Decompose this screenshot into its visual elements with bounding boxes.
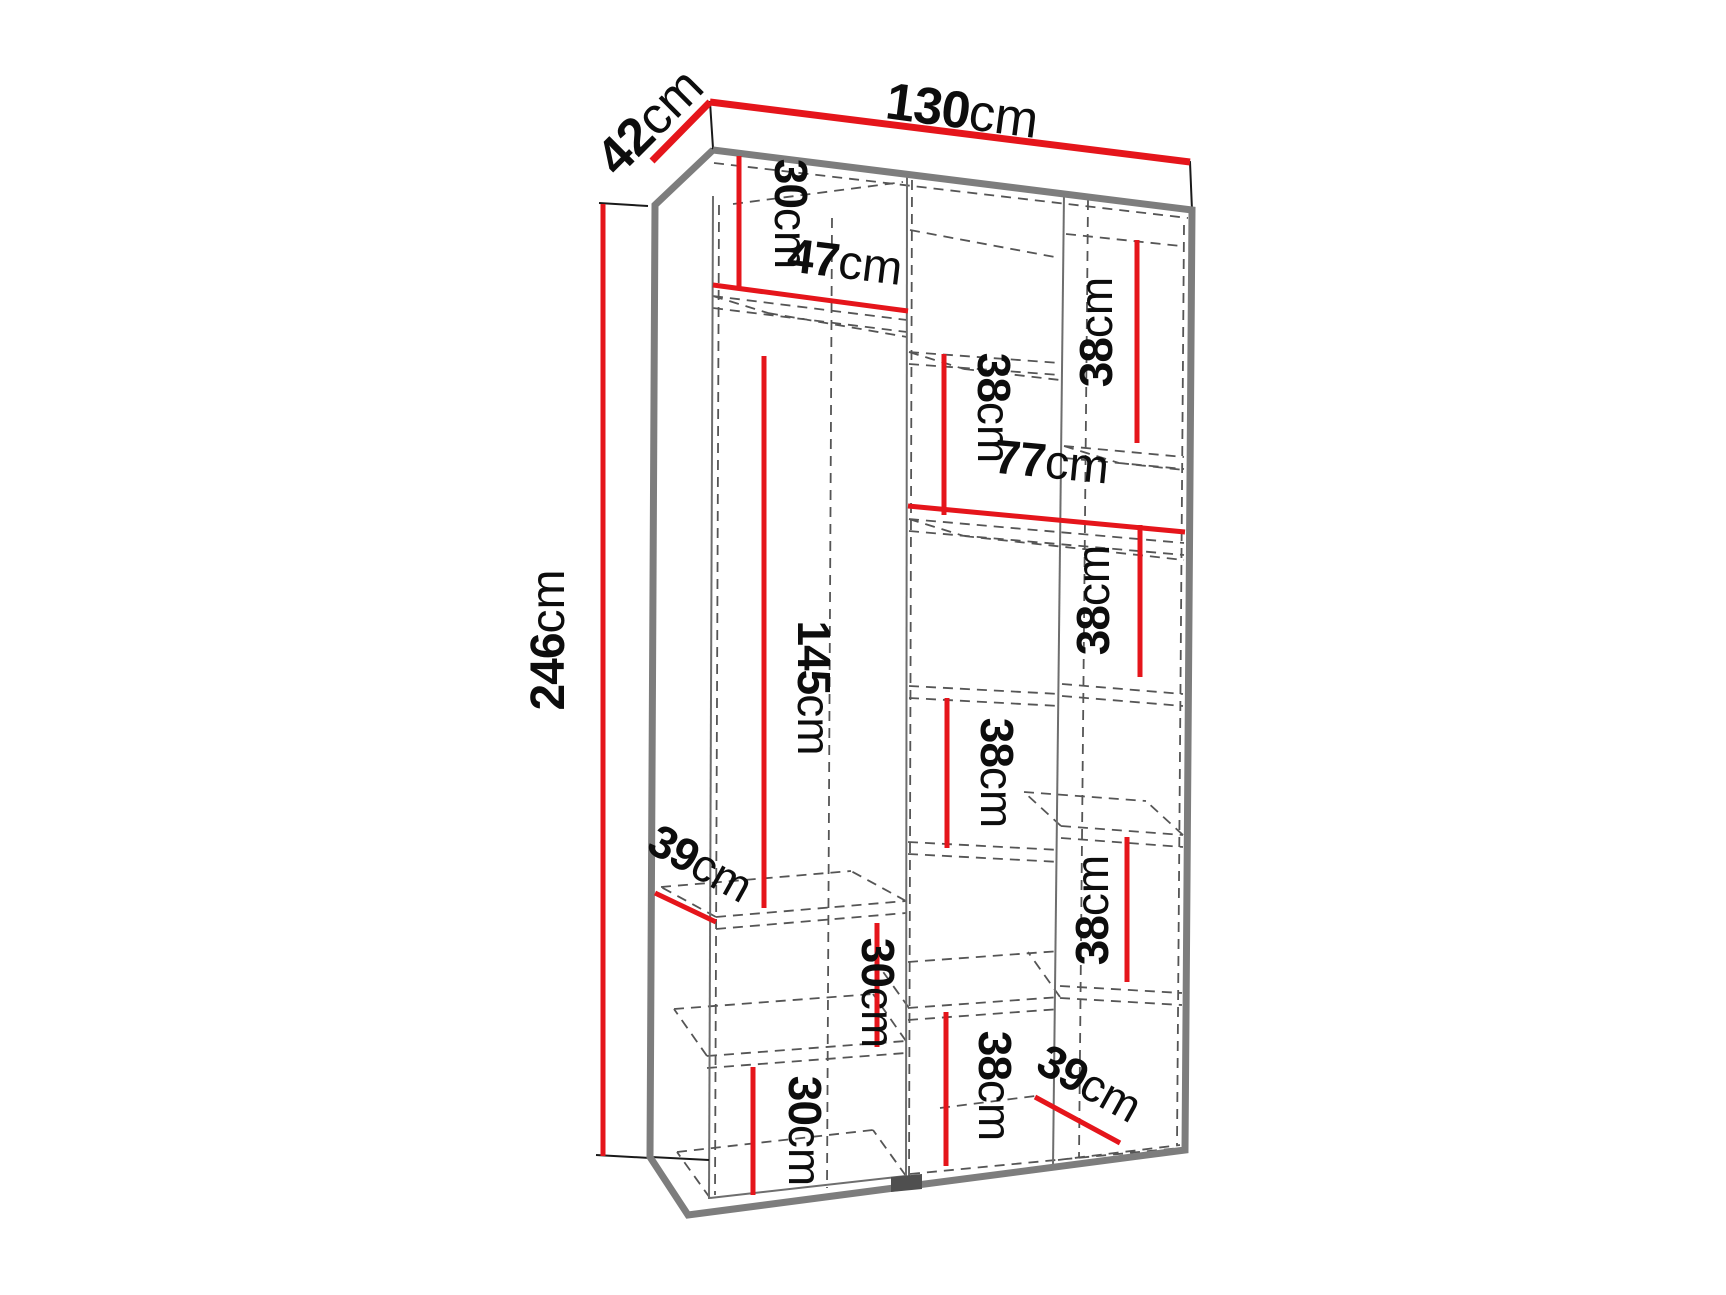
center-partition: [906, 176, 907, 1184]
label-38cm-right-3: 38cm: [1066, 855, 1118, 966]
cabinet-structure: [650, 102, 1192, 1215]
label-width-130cm: 130cm: [883, 72, 1042, 149]
label-38cm-mid-3: 38cm: [969, 1031, 1021, 1142]
wardrobe-dimension-diagram: 130cm 42cm 246cm 30cm 47cm 145cm 39cm 30…: [0, 0, 1726, 1295]
label-145cm: 145cm: [788, 620, 840, 755]
label-bottom-30cm: 30cm: [779, 1076, 831, 1187]
label-height-246cm: 246cm: [522, 569, 575, 710]
label-38cm-right-1: 38cm: [1070, 277, 1122, 388]
label-77cm: 77cm: [992, 431, 1112, 495]
label-38cm-right-2: 38cm: [1067, 545, 1119, 656]
diagram-canvas: 130cm 42cm 246cm 30cm 47cm 145cm 39cm 30…: [0, 0, 1726, 1295]
door-gap-notch: [891, 1174, 922, 1192]
label-mid-30cm: 30cm: [852, 938, 904, 1049]
height-extension-tick-top: [599, 203, 648, 206]
label-38cm-mid-2: 38cm: [971, 718, 1023, 829]
